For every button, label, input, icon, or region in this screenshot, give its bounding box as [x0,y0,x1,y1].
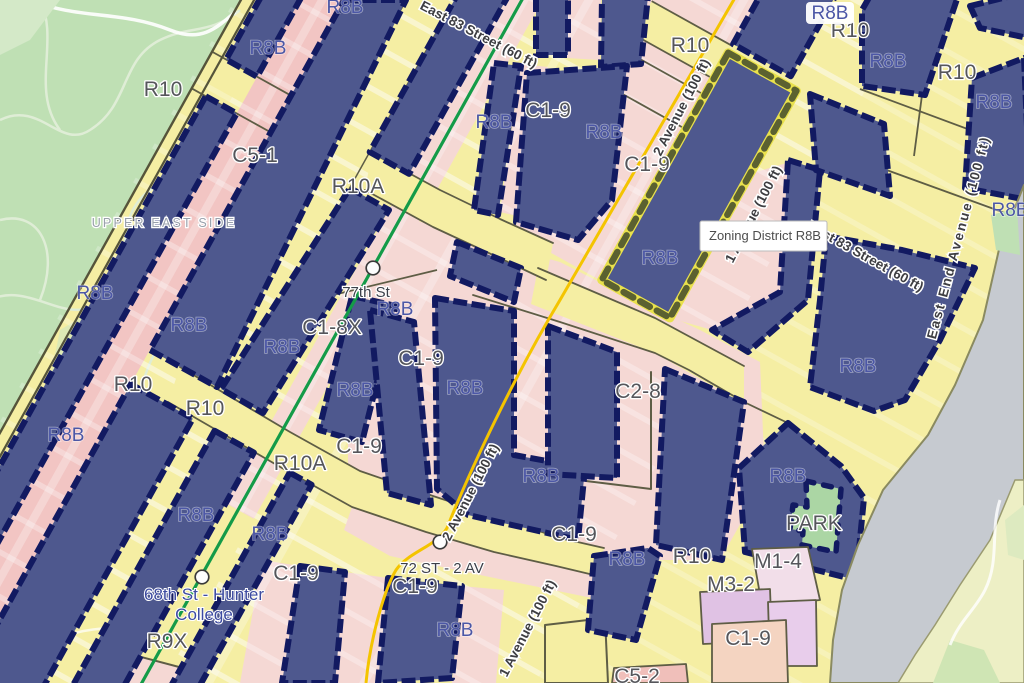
svg-text:R8B: R8B [327,0,364,18]
svg-text:R8B: R8B [642,248,679,269]
svg-text:R8B: R8B [337,380,374,401]
svg-text:R9X: R9X [147,630,188,653]
svg-text:R8B: R8B [250,38,287,59]
svg-text:R10A: R10A [274,452,327,475]
svg-text:R8B: R8B [609,549,646,570]
svg-text:R8B: R8B [437,620,474,641]
svg-text:C1-8X: C1-8X [302,316,362,339]
svg-text:R10: R10 [673,545,712,568]
svg-text:C5-1: C5-1 [232,144,278,167]
svg-text:R10: R10 [114,373,153,396]
svg-text:C1-9: C1-9 [273,562,319,585]
svg-text:R8B: R8B [586,122,623,143]
svg-text:PARK: PARK [786,512,842,535]
svg-text:R8B: R8B [992,200,1024,221]
svg-text:R8B: R8B [252,524,289,545]
svg-text:72 ST - 2 AV: 72 ST - 2 AV [400,560,484,577]
svg-text:R10: R10 [144,78,183,101]
svg-text:C5-2: C5-2 [614,665,660,683]
svg-text:C2-8: C2-8 [615,380,661,403]
svg-text:M3-2: M3-2 [707,573,755,596]
svg-text:C1-9: C1-9 [398,347,444,370]
svg-text:C1-9: C1-9 [551,523,597,546]
svg-text:R8B: R8B [178,505,215,526]
svg-text:R8B: R8B [523,466,560,487]
svg-text:R8B: R8B [264,337,301,358]
svg-text:R8B: R8B [840,356,877,377]
svg-text:Zoning District R8B: Zoning District R8B [709,228,821,243]
svg-text:C1-9: C1-9 [336,435,382,458]
svg-text:R10: R10 [186,397,225,420]
svg-text:R8B: R8B [770,466,807,487]
svg-text:R8B: R8B [48,425,85,446]
svg-text:College: College [175,605,233,624]
svg-text:77th St: 77th St [342,284,390,301]
svg-text:R10: R10 [938,61,977,84]
svg-text:R8B: R8B [976,92,1013,113]
svg-text:R8B: R8B [171,315,208,336]
svg-text:C1-9: C1-9 [725,627,771,650]
svg-text:R8B: R8B [77,283,114,304]
svg-text:UPPER EAST SIDE: UPPER EAST SIDE [92,216,237,230]
svg-text:R8B: R8B [447,378,484,399]
svg-text:68th St - Hunter: 68th St - Hunter [144,585,264,604]
svg-text:C1-9: C1-9 [525,99,571,122]
svg-text:R10A: R10A [332,175,385,198]
svg-text:C1-9: C1-9 [392,575,438,598]
svg-text:R8B: R8B [870,51,907,72]
svg-text:M1-4: M1-4 [754,550,802,573]
svg-text:R10: R10 [671,34,710,57]
svg-text:R8B: R8B [476,112,513,133]
svg-text:R8B: R8B [377,299,414,320]
svg-text:R8B: R8B [812,3,849,24]
